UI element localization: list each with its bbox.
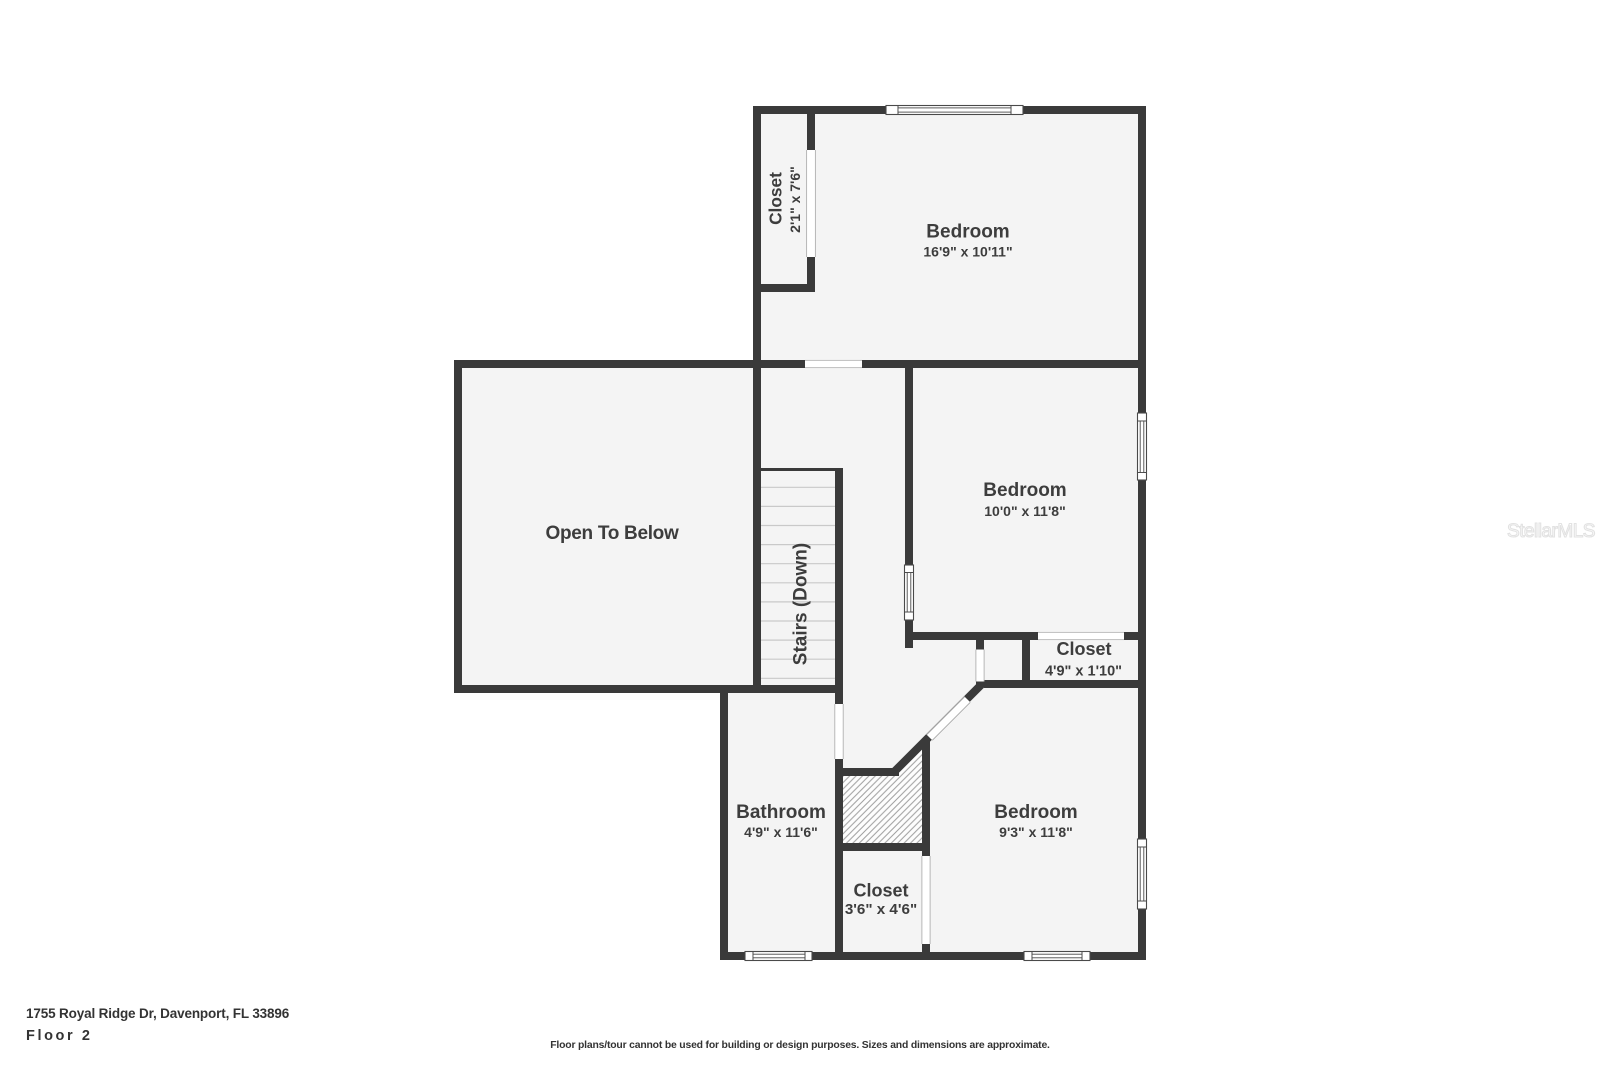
svg-text:Open To Below: Open To Below (546, 523, 679, 544)
svg-text:4'9" x 1'10": 4'9" x 1'10" (1045, 664, 1122, 680)
svg-text:4'9" x 11'6": 4'9" x 11'6" (744, 824, 818, 840)
svg-text:2'1" x 7'6": 2'1" x 7'6" (787, 166, 803, 233)
svg-text:1755 Royal Ridge Dr, Davenport: 1755 Royal Ridge Dr, Davenport, FL 33896 (26, 1006, 290, 1021)
svg-text:Bedroom: Bedroom (994, 802, 1077, 823)
svg-text:3'6" x 4'6": 3'6" x 4'6" (845, 901, 917, 918)
svg-text:Bedroom: Bedroom (926, 222, 1009, 243)
svg-text:Floor plans/tour cannot be use: Floor plans/tour cannot be used for buil… (550, 1040, 1050, 1051)
svg-text:Closet: Closet (853, 881, 908, 901)
svg-text:Floor 2: Floor 2 (26, 1028, 93, 1044)
svg-text:Stairs (Down): Stairs (Down) (791, 543, 812, 665)
svg-text:9'3" x 11'8": 9'3" x 11'8" (999, 824, 1073, 840)
svg-text:StellarMLS: StellarMLS (1507, 521, 1595, 542)
svg-text:Bathroom: Bathroom (736, 802, 826, 823)
svg-text:Closet: Closet (1056, 639, 1111, 659)
svg-text:Closet: Closet (766, 172, 786, 225)
svg-text:16'9" x 10'11": 16'9" x 10'11" (923, 244, 1012, 260)
svg-text:10'0" x 11'8": 10'0" x 11'8" (984, 503, 1065, 519)
svg-text:Bedroom: Bedroom (983, 480, 1066, 501)
